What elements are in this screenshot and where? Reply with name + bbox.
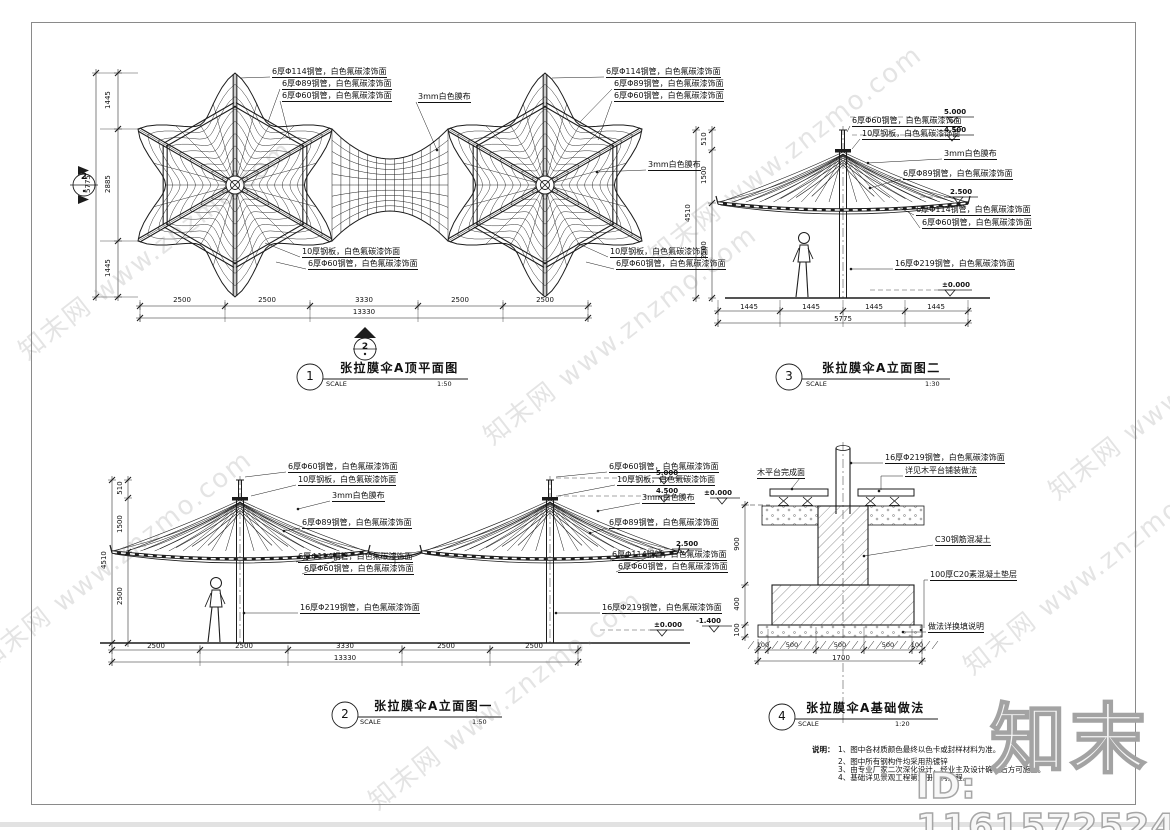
elev1-scale-value: 1:50 <box>472 719 487 726</box>
fnd-label-backfill: 做法详换填说明 <box>928 622 984 633</box>
elev1-dim: 2500 <box>131 642 181 650</box>
elev1-dim: 2500 <box>421 642 471 650</box>
elev1-label-pipe114R: 6厚Φ114钢管，白色氟碳漆饰面 <box>612 550 727 561</box>
fnd-dim-v: 100 <box>733 608 741 652</box>
plan-title: 张拉膜伞A顶平面图 <box>340 362 459 376</box>
plan-section-marker-number-bottom: 2 <box>358 342 372 352</box>
plan-section-marker-number: 2 <box>77 172 91 182</box>
elev1-label-pipe114L: 6厚Φ114钢管，白色氟碳漆饰面 <box>298 552 413 563</box>
plan-dim-v: 1445 <box>104 246 112 290</box>
elev2-dim: 1445 <box>724 303 774 311</box>
fnd-dim: 100 <box>748 642 778 649</box>
plan-dim: 2500 <box>435 296 485 304</box>
plan-dim: 3330 <box>339 296 389 304</box>
fnd-dim-total: 1700 <box>816 654 866 662</box>
plan-label-pipe60b-right: 6厚Φ60钢管，白色氟碳漆饰面 <box>616 259 726 270</box>
elev2-label-membrane: 3mm白色膜布 <box>944 149 997 160</box>
notes-line: 1、图中各材质颜色最终以色卡或封样材料为准。 <box>838 746 1000 755</box>
elev2-level-edge: 2.500 <box>950 188 972 196</box>
fnd-label-pipe219: 16厚Φ219钢管，白色氟碳漆饰面 <box>885 453 1005 464</box>
elev1-label-plateL: 10厚钢板，白色氟碳漆饰面 <box>298 475 396 486</box>
plan-label-membrane-right: 3mm白色膜布 <box>648 160 701 171</box>
cad-linework-canvas <box>0 0 1170 830</box>
elev1-label-membraneL: 3mm白色膜布 <box>332 491 385 502</box>
elev2-scale-label: SCALE <box>806 381 827 388</box>
elev2-scale-value: 1:30 <box>925 381 940 388</box>
plan-scale-value: 1:50 <box>437 381 452 388</box>
elev1-dim-v: 1500 <box>116 502 124 546</box>
elev1-label-pipe60R: 6厚Φ60钢管，白色氟碳漆饰面 <box>618 562 728 573</box>
plan-dim-total: 13330 <box>339 308 389 316</box>
plan-label-plate-right: 10厚钢板，白色氟碳漆饰面 <box>610 247 708 258</box>
fnd-dim: 100 <box>902 642 932 649</box>
fnd-scale-label: SCALE <box>798 721 819 728</box>
elev2-dim-v-total: 4510 <box>684 191 692 235</box>
plan-dim: 2500 <box>242 296 292 304</box>
plan-label-pipe89-left: 6厚Φ89钢管，白色氟碳漆饰面 <box>282 79 392 90</box>
fnd-label-paving-ref: 详见木平台铺装做法 <box>905 466 977 477</box>
elev2-dim: 1445 <box>849 303 899 311</box>
notes-heading: 说明： <box>812 746 835 755</box>
elev1-detail-bubble-number: 2 <box>332 708 358 722</box>
fnd-dim: 500 <box>825 642 855 649</box>
plan-dim-v: 2885 <box>104 162 112 206</box>
elev2-label-pipe60-rim: 6厚Φ60钢管，白色氟碳漆饰面 <box>922 218 1032 229</box>
elev2-label-pipe89: 6厚Φ89钢管，白色氟碳漆饰面 <box>903 169 1013 180</box>
notes-line: 4、基础详见景观工程第六册结构工程。 <box>838 774 970 783</box>
fnd-label-concrete: C30钢筋混凝土 <box>935 535 991 546</box>
elev2-dim-v: 2500 <box>700 228 708 272</box>
elev1-label-pipe60-topL: 6厚Φ60钢管，白色氟碳漆饰面 <box>288 462 398 473</box>
elev1-level-ground: ±0.000 <box>654 621 682 629</box>
elev1-level-edge: 2.500 <box>676 540 698 548</box>
elev2-label-pipe114: 6厚Φ114钢管，白色氟碳漆饰面 <box>916 205 1031 216</box>
fnd-dim-v: 900 <box>733 522 741 566</box>
plan-label-membrane-center: 3mm白色膜布 <box>418 92 471 103</box>
elev1-dim-v: 2500 <box>116 574 124 618</box>
elev1-dim-total: 13330 <box>320 654 370 662</box>
plan-dim-v-total: 5775 <box>84 162 92 206</box>
fnd-level-ground: ±0.000 <box>704 489 732 497</box>
elev1-dim: 2500 <box>509 642 559 650</box>
elev1-level-plate: 4.500 <box>656 487 678 495</box>
plan-dim: 2500 <box>520 296 570 304</box>
elev2-title: 张拉膜伞A立面图二 <box>822 362 941 376</box>
plan-label-pipe60-left: 6厚Φ60钢管，白色氟碳漆饰面 <box>282 91 392 102</box>
elev2-level-ground: ±0.000 <box>942 281 970 289</box>
fnd-label-deck-finish: 木平台完成面 <box>757 468 805 479</box>
fnd-title: 张拉膜伞A基础做法 <box>806 702 925 716</box>
elev1-level-top: 5.000 <box>656 469 678 477</box>
plan-label-pipe60-right: 6厚Φ60钢管，白色氟碳漆饰面 <box>614 91 724 102</box>
fnd-scale-value: 1:20 <box>895 721 910 728</box>
elev2-dim-total: 5775 <box>818 315 868 323</box>
elev1-label-pipe60L: 6厚Φ60钢管，白色氟碳漆饰面 <box>304 564 414 575</box>
elev2-dim: 1445 <box>786 303 836 311</box>
fnd-dim: 500 <box>777 642 807 649</box>
elev2-detail-bubble-number: 3 <box>776 370 802 384</box>
elev1-label-pipe219L: 16厚Φ219钢管，白色氟碳漆饰面 <box>300 603 420 614</box>
elev2-level-top: 5.000 <box>944 108 966 116</box>
elev2-dim-v: 1500 <box>700 153 708 197</box>
plan-dim: 2500 <box>157 296 207 304</box>
plan-label-pipe114-left: 6厚Φ114钢管，白色氟碳漆饰面 <box>272 67 387 78</box>
plan-dim-v: 1445 <box>104 78 112 122</box>
elev1-dim: 2500 <box>219 642 269 650</box>
elev1-label-pipe89R: 6厚Φ89钢管，白色氟碳漆饰面 <box>609 518 719 529</box>
elev1-dim-v-total: 4510 <box>100 538 108 582</box>
elev2-level-plate: 4.500 <box>944 126 966 134</box>
plan-scale-label: SCALE <box>326 381 347 388</box>
elev1-title: 张拉膜伞A立面图一 <box>374 700 493 714</box>
elev2-label-pipe219: 16厚Φ219钢管，白色氟碳漆饰面 <box>895 259 1015 270</box>
elev1-label-pipe89L: 6厚Φ89钢管，白色氟碳漆饰面 <box>302 518 412 529</box>
plan-label-pipe114-right: 6厚Φ114钢管，白色氟碳漆饰面 <box>606 67 721 78</box>
plan-label-pipe89-right: 6厚Φ89钢管，白色氟碳漆饰面 <box>614 79 724 90</box>
plan-detail-bubble-number: 1 <box>297 370 323 384</box>
fnd-level-bottom: -1.400 <box>696 617 721 625</box>
plan-label-pipe60b-left: 6厚Φ60钢管，白色氟碳漆饰面 <box>308 259 418 270</box>
elev1-scale-label: SCALE <box>360 719 381 726</box>
plan-label-plate-left: 10厚钢板，白色氟碳漆饰面 <box>302 247 400 258</box>
elev1-label-pipe219R: 16厚Φ219钢管，白色氟碳漆饰面 <box>602 603 722 614</box>
fnd-detail-bubble-number: 4 <box>769 710 795 724</box>
elev1-dim: 3330 <box>320 642 370 650</box>
fnd-dim: 500 <box>873 642 903 649</box>
elev2-dim: 1445 <box>911 303 961 311</box>
fnd-label-cushion: 100厚C20素混凝土垫层 <box>930 570 1017 581</box>
